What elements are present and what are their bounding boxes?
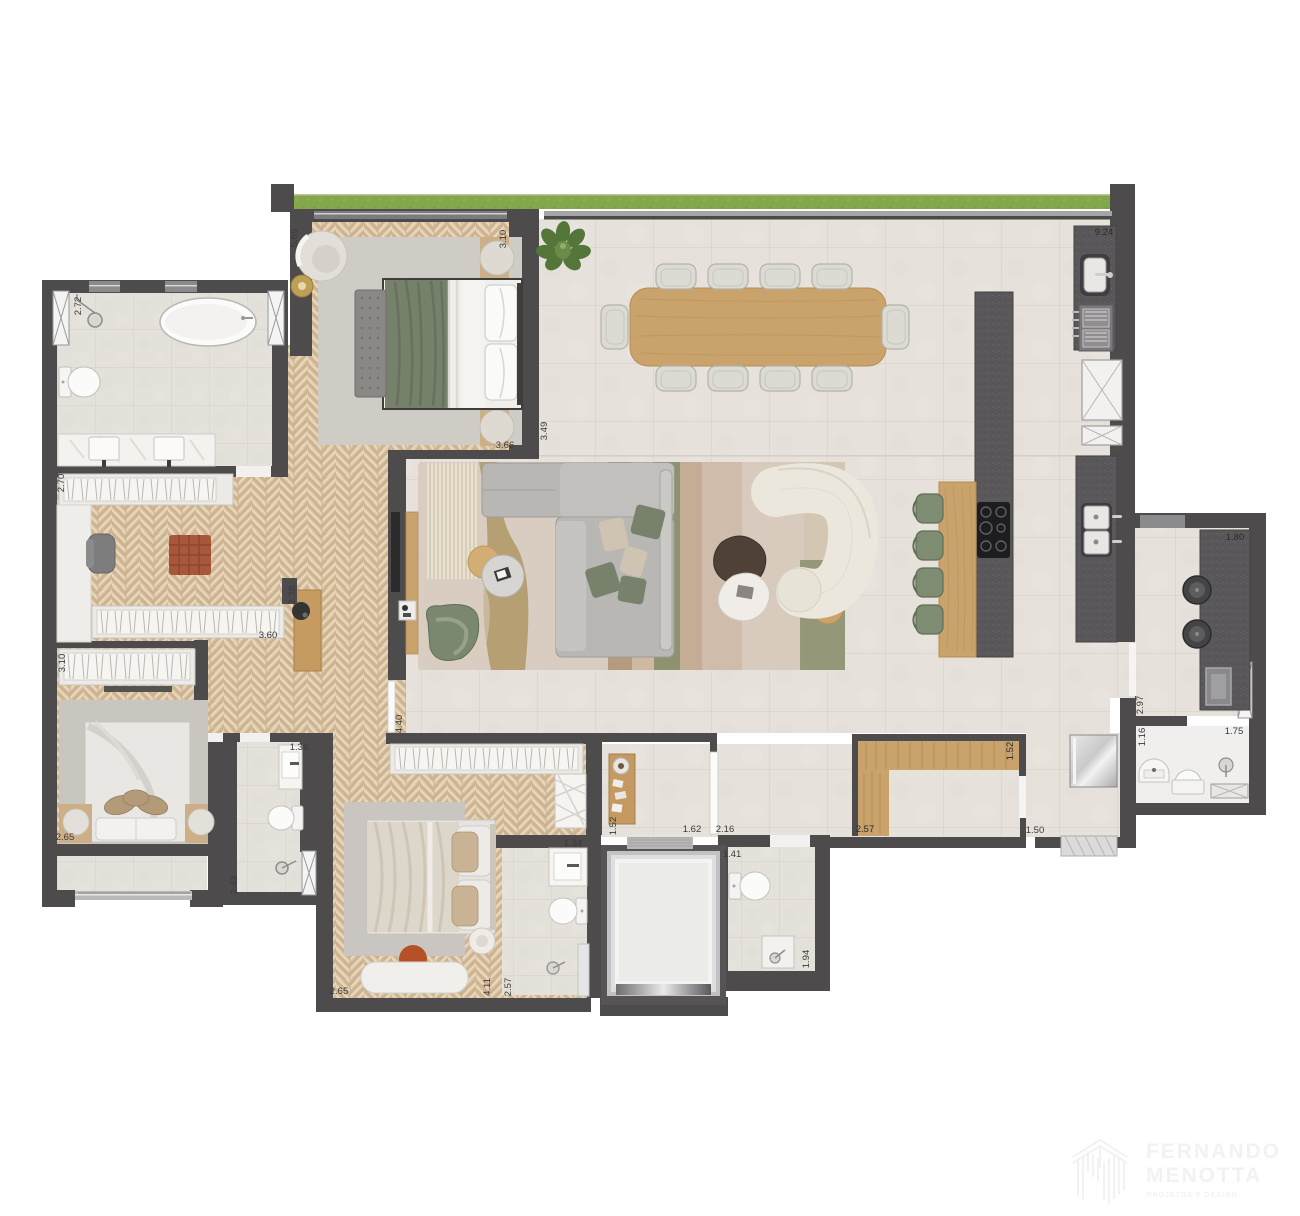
svg-text:1.75: 1.75 (1225, 726, 1244, 737)
svg-text:2.72: 2.72 (73, 297, 84, 316)
svg-text:3.10: 3.10 (57, 654, 68, 673)
svg-text:1.52: 1.52 (608, 817, 619, 836)
svg-text:9.24: 9.24 (1095, 227, 1114, 238)
svg-text:PROJETOS E DESIGN: PROJETOS E DESIGN (1147, 1192, 1237, 1199)
svg-text:4.40: 4.40 (394, 715, 405, 734)
svg-text:3.10: 3.10 (498, 230, 509, 249)
svg-text:2.57: 2.57 (503, 978, 514, 997)
svg-text:2.43: 2.43 (229, 876, 240, 895)
svg-text:2.97: 2.97 (1135, 696, 1146, 715)
svg-text:MENOTTA: MENOTTA (1146, 1164, 1262, 1187)
svg-text:2.38: 2.38 (287, 586, 298, 605)
svg-text:2.70: 2.70 (56, 474, 67, 493)
svg-text:1.50: 1.50 (1026, 825, 1045, 836)
svg-text:4.11: 4.11 (482, 978, 493, 996)
svg-text:2.57: 2.57 (856, 824, 875, 835)
svg-text:1.62: 1.62 (683, 824, 702, 835)
svg-text:1.80: 1.80 (1226, 532, 1245, 543)
svg-text:3.66: 3.66 (496, 440, 515, 451)
svg-text:1.16: 1.16 (1137, 728, 1148, 747)
svg-text:1.36: 1.36 (290, 742, 309, 753)
svg-text:5.65: 5.65 (289, 229, 300, 248)
svg-text:2.65: 2.65 (330, 986, 349, 997)
svg-text:2.16: 2.16 (716, 824, 735, 835)
svg-text:3.49: 3.49 (539, 422, 550, 441)
svg-text:2.65: 2.65 (56, 832, 75, 843)
svg-text:3.60: 3.60 (259, 630, 278, 641)
svg-text:FERNANDO: FERNANDO (1146, 1140, 1281, 1163)
svg-text:1.41: 1.41 (723, 849, 742, 860)
svg-text:1.34: 1.34 (564, 838, 583, 849)
svg-text:1.94: 1.94 (801, 950, 812, 969)
svg-text:1.52: 1.52 (1005, 742, 1016, 761)
